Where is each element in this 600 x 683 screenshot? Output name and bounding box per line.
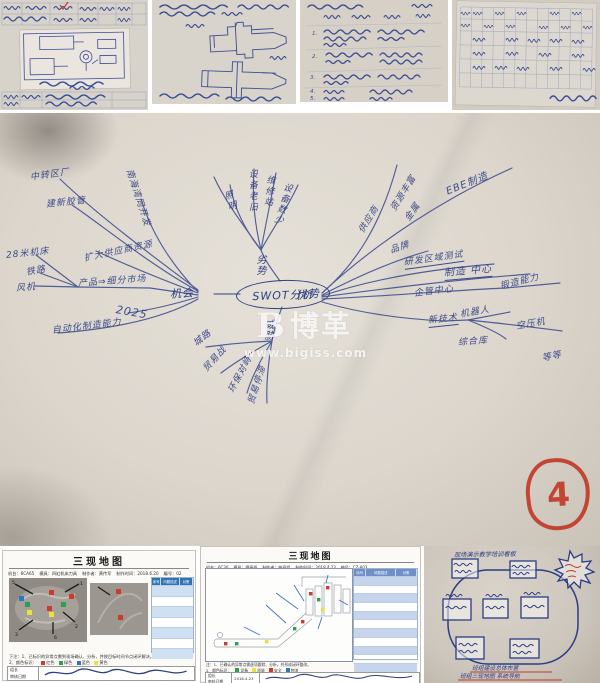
field: 机台：6CA65: [8, 571, 34, 577]
table-row: [354, 646, 417, 655]
table-row: [152, 596, 193, 607]
doc3-title: 现场演示教学培训看板: [454, 550, 517, 559]
signature-labels: 组长 审核日期: [206, 673, 232, 683]
stamp-number: 4: [546, 474, 571, 514]
doc1-signature-row: 组长 审核日期: [7, 666, 195, 681]
table-row: [354, 619, 417, 628]
legend-swatch: [59, 661, 63, 665]
legend-label: 红色: [46, 660, 54, 665]
svg-text:4.: 4.: [310, 89, 315, 95]
mindmap-label: 风机: [15, 279, 36, 294]
table-row: [152, 638, 193, 649]
sign-label: 审核日期: [208, 679, 229, 683]
photo-handwritten-list: 1. 2. 3. 4. 5.: [300, 0, 448, 102]
table-row: [354, 602, 417, 611]
table-row: [152, 606, 193, 617]
doc1-photo-left: 1 2 3 5 6: [9, 578, 87, 642]
signature-scribble: [39, 667, 194, 680]
doc3-caption1: 班组建设总体布置: [472, 665, 520, 672]
table-row: [354, 637, 417, 646]
field: 模具：四缸机床刀具: [39, 571, 77, 577]
sign-label: 组长: [10, 667, 36, 673]
col-header: 问题描述: [161, 578, 180, 585]
doc1-photo-right: [90, 583, 148, 635]
col-header: 对策: [180, 578, 193, 585]
signature-scribble: [260, 673, 419, 683]
legend-label: 黄色: [99, 660, 107, 665]
legend-swatch: [94, 661, 98, 665]
sign-label: 审核日期: [10, 674, 36, 680]
doc1-title: 三现地图: [9, 553, 189, 569]
board-boxes: [443, 559, 548, 659]
field: 制作者：黄传军: [82, 571, 111, 577]
issue-markers: [224, 586, 329, 645]
col-header: 对策: [396, 569, 417, 576]
table-row: [152, 627, 193, 638]
svg-text:3: 3: [15, 632, 18, 638]
legend-prefix: 2、颜色标识：: [9, 660, 37, 665]
photo-tooling-sketch: [152, 0, 296, 104]
svg-text:2.: 2.: [312, 54, 317, 60]
doc-three-reality-map-1: 三现地图 机台：6CA65 模具：四缸机床刀具 制作者：黄传军 制作时间：201…: [2, 550, 196, 681]
legend-swatch: [41, 661, 45, 665]
mindmap-label: 新技术: [427, 310, 458, 328]
svg-text:6: 6: [54, 635, 57, 641]
mindmap-label: 综合库: [458, 333, 489, 348]
doc2-layout-drawing: [205, 568, 353, 662]
svg-text:2: 2: [75, 624, 78, 630]
table-row: [354, 585, 417, 594]
photo-handwritten-table: [452, 0, 600, 110]
table-header: 序号 问题描述 对策: [354, 569, 417, 576]
doc1-notes: 下注：1、已标识的异常点需到现场确认、分析，并按目标时间节点闭环解决。 2、颜色…: [9, 654, 191, 667]
legend-label: 绿色: [64, 660, 72, 665]
svg-text:1.: 1.: [312, 31, 317, 37]
node-opportunity: 机会: [169, 284, 194, 302]
starburst-callout: [555, 551, 594, 588]
table-header: 序号 问题描述 对策: [152, 578, 193, 585]
photo3-sketch: 1. 2. 3. 4. 5.: [300, 0, 448, 102]
legend-label: 蓝色: [82, 660, 90, 665]
legend-swatch: [77, 661, 81, 665]
mindmap-photo: SWOT分析 机会 优势 劣势 威胁 中转区厂 建新胶管 南海湾同开发 扩大供应…: [0, 113, 600, 546]
photo-collage: 1. 2. 3. 4. 5.: [0, 0, 600, 683]
table-row: [354, 593, 417, 602]
svg-text:3.: 3.: [310, 75, 315, 81]
photo1-sketch: [0, 0, 148, 110]
node-weakness: 劣势: [252, 254, 267, 276]
table-row: [354, 611, 417, 620]
doc2-signature-row: 组长 审核日期 2018.4.23: [205, 672, 420, 683]
photo2-sketch: [152, 0, 296, 104]
doc-three-reality-map-2: 三现地图 机台：6C30 模具：焊接线 制作者：曲班组 制作时间：2018.4.…: [200, 546, 421, 683]
doc2-title: 三现地图: [207, 549, 414, 563]
table-row: [152, 617, 193, 628]
photo4-sketch: [452, 0, 600, 110]
table-row: [152, 585, 193, 596]
svg-text:5.: 5.: [310, 96, 315, 102]
signature-labels: 组长 审核日期: [8, 667, 39, 680]
sign-date: 2018.4.23: [234, 676, 257, 681]
col-header: 序号: [354, 569, 366, 576]
svg-text:5: 5: [12, 580, 15, 586]
node-threat: 威胁: [260, 319, 275, 341]
doc3-sketch: 现场演示教学培训看板: [424, 546, 600, 683]
table-row: [354, 576, 417, 585]
photo-form-layout-sketch: [0, 0, 148, 110]
doc3-caption2: 班组三现地图 系统导航: [460, 673, 521, 680]
table-row: [354, 628, 417, 637]
col-header: 序号: [152, 578, 161, 585]
node-strength: 优势: [295, 285, 321, 303]
signature-date-cell: 2018.4.23: [232, 673, 260, 683]
doc1-fields: 机台：6CA65 模具：四缸机床刀具 制作者：黄传军 制作时间：2018.6.2…: [3, 569, 195, 577]
doc-board-layout-sketch: 现场演示教学培训看板: [424, 546, 600, 683]
doc2-issue-table: 序号 问题描述 对策: [353, 568, 418, 660]
mindmap-label: 设备老旧: [246, 169, 259, 213]
doc1-issue-table: 序号 问题描述 对策: [151, 577, 194, 653]
annotation-arrows: [244, 575, 348, 635]
col-header: 问题描述: [366, 569, 396, 576]
svg-text:1: 1: [80, 581, 83, 587]
